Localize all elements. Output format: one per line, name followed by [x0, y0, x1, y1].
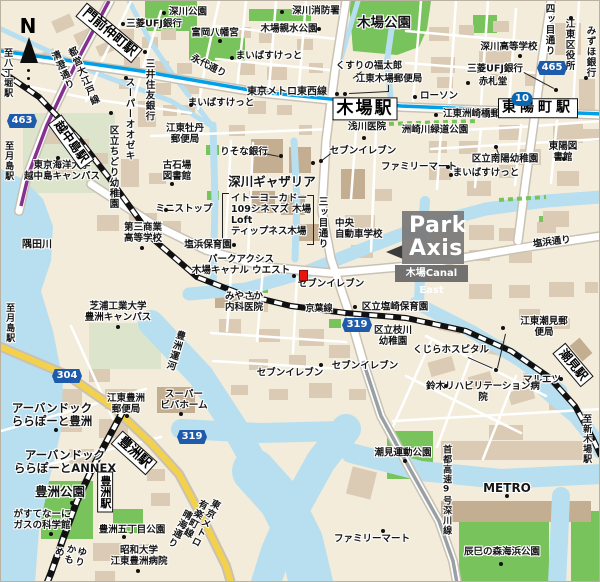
poi-dot	[446, 165, 450, 169]
map-label: 隅田川	[22, 239, 52, 251]
poi-dot	[162, 11, 166, 15]
map-label: 洲崎川緑道公園	[402, 126, 469, 137]
map-label: まいばすけっと	[188, 99, 255, 110]
poi-dot	[403, 459, 407, 463]
park-axis-callout: Park Axis	[402, 211, 464, 264]
route-badge: 319	[177, 430, 207, 444]
map-label: 至月島駅	[4, 303, 14, 343]
poi-dot	[494, 368, 498, 372]
compass-dot	[27, 69, 30, 72]
map-label: 首都高速9号深川線	[441, 445, 451, 536]
map-label: 辰巳の森海浜公園	[464, 548, 540, 559]
map-label: 第三商業 高等学校	[124, 223, 162, 245]
poi-dot	[559, 377, 563, 381]
map-label: 木場公園	[357, 16, 411, 32]
map-label: 三菱UFJ銀行	[467, 65, 523, 76]
map-label: 深川公園	[169, 8, 207, 19]
poi-dot	[413, 95, 417, 99]
poi-dot	[143, 50, 147, 54]
map-label: 江東牡丹 郵便局	[166, 124, 204, 146]
map-label: イトーヨーカドー 109シネマズ 木場 Loft ティップネス木場	[231, 194, 311, 238]
compass-dot	[27, 85, 30, 88]
map-label: 江東木場郵便局	[356, 75, 423, 86]
poi-dot	[121, 22, 125, 26]
map-label: 中央 自動車学校	[335, 219, 383, 241]
poi-dot	[343, 92, 347, 96]
compass-arrow-icon	[20, 37, 38, 63]
map-label: 三ッ目通り	[316, 197, 327, 250]
route-badge: 304	[52, 369, 82, 383]
callout-arrow-icon	[386, 245, 403, 259]
map-label: セブンイレブン	[298, 280, 365, 291]
station-label: 豊洲駅	[97, 472, 113, 513]
poi-dot	[501, 326, 505, 330]
poi-dot	[54, 428, 58, 432]
map-label: セブンイレブン	[257, 369, 324, 380]
poi-dot	[179, 412, 183, 416]
map-label: パークアクシス 木場キャナル ウエスト	[192, 255, 290, 277]
poi-dot	[116, 325, 120, 329]
property-marker	[299, 270, 308, 281]
map-label: くすりの福太郎	[336, 62, 403, 73]
poi-dot	[569, 16, 573, 20]
map-label: 富岡八幡宮	[191, 29, 239, 40]
map-label: ファミリーマート	[334, 535, 410, 546]
route-badge: 463	[7, 114, 37, 128]
map-label: みずほ銀行	[584, 26, 595, 79]
map-label: 豊洲公園	[35, 485, 85, 499]
map-label: 潮見運動公園	[374, 449, 431, 460]
map-label: 豊洲五丁目公園	[99, 526, 166, 537]
poi-dot	[335, 92, 339, 96]
map-label: セブンイレブン	[332, 362, 399, 373]
poi-dot	[444, 384, 448, 388]
map-label: 区立ちどり幼稚園	[107, 125, 118, 209]
map-label: 三井住友銀行	[143, 59, 154, 122]
map-label: アーバンドック ららぽーと豊洲	[12, 402, 93, 428]
poi-dot	[554, 88, 558, 92]
map-label: 木場親水公園	[260, 25, 317, 36]
poi-dot	[381, 529, 385, 533]
map-label: 東京海洋大学 越中島キャンパス	[24, 161, 100, 183]
map-label: くじらホスピタル	[413, 346, 489, 357]
map-label: 芝浦工業大学 豊洲キャンパス	[85, 302, 152, 324]
poi-dot	[230, 56, 234, 60]
map-label: 深川ギャザリア	[228, 175, 316, 189]
station-label: 木場駅	[333, 97, 398, 120]
facility-list-bracket-left	[222, 193, 229, 243]
poi-dot	[466, 81, 470, 85]
poi-dot	[362, 136, 366, 140]
map-label: 至新木場駅	[581, 414, 591, 464]
poi-dot	[122, 535, 126, 539]
route-badge: 465	[537, 61, 567, 75]
map-label: 至八丁堀駅	[2, 48, 12, 98]
map-label: 江東豊洲 郵便局	[107, 394, 145, 416]
poi-dot	[124, 76, 128, 80]
poi-dot	[125, 414, 129, 418]
map-label: 江東潮見郵便局	[517, 317, 572, 339]
map-label: 東京メトロ東西線	[247, 86, 327, 98]
poi-dot	[189, 103, 193, 107]
map-label: 深川高等学校	[480, 43, 537, 54]
map-label: スーパーオオゼキ	[123, 77, 134, 161]
map-label: 浅川医院	[348, 123, 386, 134]
map-label: セブンイレブン	[330, 147, 397, 158]
map-label: 至月島駅	[3, 141, 13, 181]
poi-dot	[353, 305, 357, 309]
map-label: りそな銀行	[220, 148, 268, 159]
poi-dot	[449, 173, 453, 177]
compass-dot	[27, 77, 30, 80]
map-label: ローソン	[420, 92, 458, 103]
poi-dot	[170, 182, 174, 186]
poi-dot	[279, 154, 283, 158]
station-label: 東陽町駅	[498, 98, 578, 118]
poi-dot	[56, 156, 60, 160]
poi-dot	[518, 54, 522, 58]
metro-line-badge: 10	[512, 92, 533, 106]
map-label: 区立南陽幼稚園	[472, 155, 539, 166]
map-label: 区立枝川 幼稚園	[374, 326, 412, 348]
map-label: 三菱UFJ銀行	[126, 20, 182, 31]
property-name-band: 木場Canal East	[395, 265, 468, 282]
map-label: まいばすけっと	[236, 52, 303, 63]
map-canvas: N 深川公園三菱UFJ銀行富岡八幡宮深川消防署木場親水公園木場公園深川高等学校三…	[0, 0, 600, 582]
map-label: まいばすけっと	[453, 169, 520, 180]
compass-north-label: N	[20, 14, 37, 38]
poi-dot	[499, 562, 503, 566]
poi-dot	[434, 113, 438, 117]
route-badge: 319	[342, 318, 372, 332]
map-label: 京葉線	[305, 304, 332, 314]
map-label: 四ッ目通り	[543, 4, 554, 57]
poi-dot	[280, 10, 284, 14]
poi-dot	[562, 157, 566, 161]
poi-dot	[140, 246, 144, 250]
logo-line2: Axis	[409, 237, 464, 260]
map-label: 区立塩崎保育園	[362, 303, 429, 314]
map-label: 昭和大学 江東豊洲病院	[110, 546, 167, 568]
map-label: スーパー ビバホーム	[160, 390, 207, 412]
poi-dot	[319, 363, 323, 367]
poi-dot	[109, 111, 113, 115]
poi-dot	[311, 161, 315, 165]
map-label: 鈴木リハビリテーション病院	[425, 382, 541, 404]
map-label: 塩浜保育園	[184, 241, 232, 252]
poi-dot	[232, 243, 236, 247]
poi-dot	[317, 27, 321, 31]
poi-dot	[584, 76, 588, 80]
map-label: がすてなーに ガスの科学館	[13, 510, 70, 532]
poi-dot	[292, 274, 296, 278]
poi-dot	[70, 501, 74, 505]
map-label: 赤札堂	[479, 78, 508, 89]
poi-dot	[136, 569, 140, 573]
map-label: みやさか 内科医院	[225, 292, 263, 314]
map-label: 古石場 図書館	[163, 161, 192, 183]
poi-dot	[164, 208, 168, 212]
poi-dot	[505, 494, 509, 498]
map-label: 深川消防署	[292, 7, 340, 18]
logo-line1: Park	[409, 214, 464, 237]
poi-dot	[218, 39, 222, 43]
poi-dot	[49, 532, 53, 536]
